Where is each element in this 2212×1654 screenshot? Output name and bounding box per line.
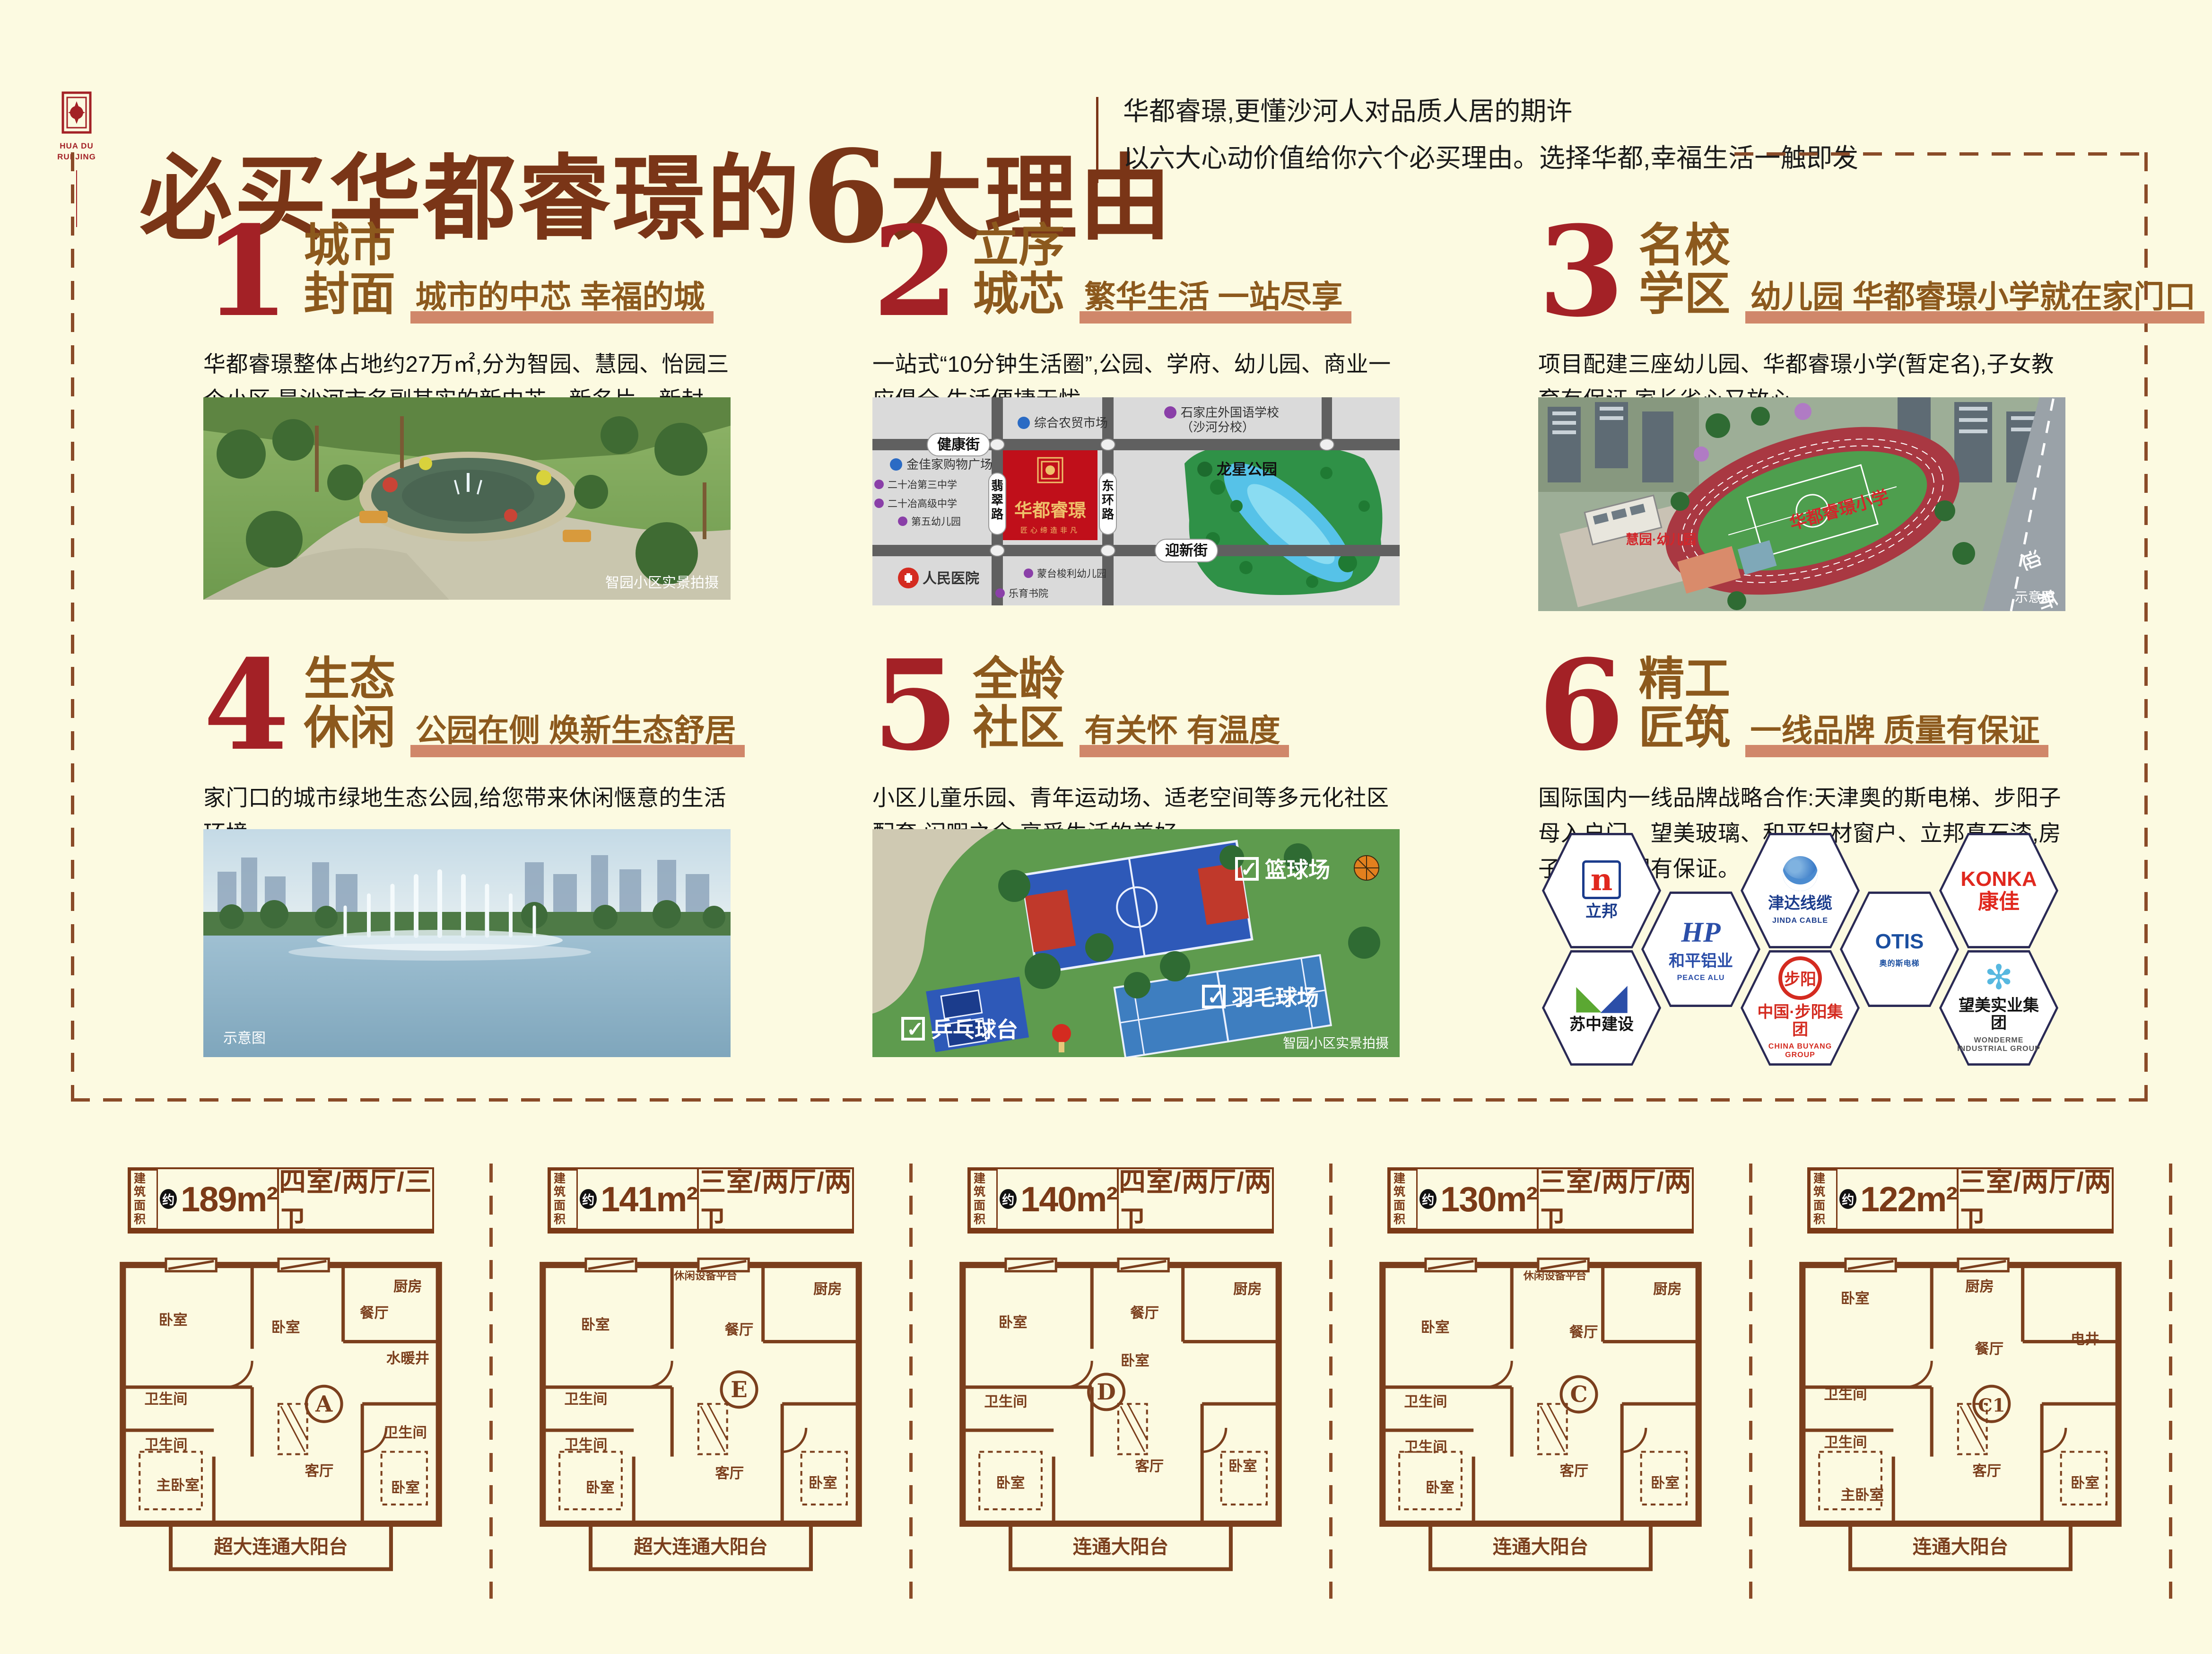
reason-1-subtitle: 城市的中芯 幸福的城 xyxy=(412,271,707,317)
brand-name: 苏中建设 xyxy=(1569,1016,1634,1033)
plan-approx-badge: 约 xyxy=(1420,1189,1437,1209)
svg-text:卧室: 卧室 xyxy=(586,1479,615,1496)
reason-6-number: 6 xyxy=(1538,658,1624,753)
floorplan-drawing: D 卧室餐厅厨房卫生间卧室客厅卧室卧室 连通大阳台 xyxy=(934,1246,1307,1619)
plan-area-prefix: 建筑面积 xyxy=(130,1169,158,1229)
svg-text:客厅: 客厅 xyxy=(305,1462,334,1479)
svg-text:客厅: 客厅 xyxy=(1560,1462,1589,1479)
wonderme-logo-icon: ✻ xyxy=(1985,963,2013,993)
svg-text:卫生间: 卫生间 xyxy=(384,1425,427,1441)
peace-alu-logo-icon: HP xyxy=(1681,916,1720,949)
reason-3-subtitle: 幼儿园 华都睿璟小学就在家门口 xyxy=(1747,271,2198,317)
plan-letter: C1 xyxy=(1978,1395,2005,1416)
hospital-icon xyxy=(898,568,919,588)
reason-4-title: 生态休闲 xyxy=(304,655,395,753)
svg-text:健康街: 健康街 xyxy=(937,437,980,453)
school-photo: 华都睿璟小学 慧园·幼儿园 迎 新 示意图 xyxy=(1538,397,2065,611)
svg-text:卧室: 卧室 xyxy=(1228,1458,1257,1474)
brand-logo: HUA DU RUI JING xyxy=(53,91,100,227)
floorplan-drawing: E 休闲设备平台卧室餐厅厨房卫生间卫生间卧室客厅卧室 超大连通大阳台 xyxy=(514,1246,888,1619)
reason-3-title: 名校学区 xyxy=(1638,221,1730,319)
reason-5-number: 5 xyxy=(872,658,958,753)
svg-text:卧室: 卧室 xyxy=(1426,1479,1454,1496)
brand-subname: WONDERME INDUSTRIAL GROUP xyxy=(1955,1036,2042,1053)
nippon-logo-icon: n xyxy=(1582,860,1621,899)
reason-2-number: 2 xyxy=(872,225,958,319)
brand-name: OTIS xyxy=(1875,930,1924,953)
plan-approx-badge: 约 xyxy=(1000,1189,1017,1209)
svg-text:卫生间: 卫生间 xyxy=(1824,1434,1867,1450)
svg-text:卫生间: 卫生间 xyxy=(144,1436,187,1453)
brand-name: 望美实业集团 xyxy=(1955,997,2042,1033)
plan-card-1: 建筑面积 约 189m² 四室/两厅/三卫 xyxy=(71,1154,491,1619)
svg-text:迎新街: 迎新街 xyxy=(1165,543,1208,559)
plan-label: 建筑面积 约 189m² 四室/两厅/三卫 xyxy=(128,1167,434,1234)
plan-card-3: 建筑面积 约 140m² 四室/两厅/两卫 xyxy=(911,1154,1331,1619)
svg-text:主卧室: 主卧室 xyxy=(1841,1487,1884,1503)
plan-area: 122m² xyxy=(1860,1179,1957,1219)
svg-text:水暖井: 水暖井 xyxy=(386,1350,429,1366)
brand-name: KONKA康佳 xyxy=(1955,868,2042,914)
plan-card-2: 建筑面积 约 141m² 三室/两厅/两卫 xyxy=(491,1154,911,1619)
reason-section-4: 4 生态休闲 公园在侧 焕新生态舒居 家门口的城市绿地生态公园,给您带来休闲惬意… xyxy=(203,655,731,851)
plan-area: 189m² xyxy=(181,1179,277,1219)
svg-text:餐厅: 餐厅 xyxy=(1130,1305,1159,1321)
reason-6-title: 精工匠筑 xyxy=(1638,655,1730,753)
reason-section-2: 2 立序城芯 繁华生活 一站尽享 一站式“10分钟生活圈”,公园、学府、幼儿园、… xyxy=(872,221,1400,417)
svg-text:卧室: 卧室 xyxy=(1651,1474,1680,1491)
poster-page: HUA DU RUI JING 必买华都睿璟的6大理由 华都睿璟,更懂沙河人对品… xyxy=(0,0,2212,1654)
plan-area-prefix: 建筑面积 xyxy=(1809,1169,1838,1229)
svg-text:✓: ✓ xyxy=(1240,858,1258,881)
svg-text:卧室: 卧室 xyxy=(159,1312,188,1328)
location-map: 华都睿璟 匠心缔造非凡 健康街 迎新街 翡翠路 东环路 xyxy=(872,397,1400,605)
svg-text:卧室: 卧室 xyxy=(1121,1352,1150,1369)
balcony-label: 连通大阳台 xyxy=(1073,1536,1169,1558)
brand-name: 和平铝业 xyxy=(1669,953,1733,970)
svg-text:卧室: 卧室 xyxy=(2071,1474,2099,1491)
svg-text:电井: 电井 xyxy=(2071,1331,2099,1348)
svg-text:卧室: 卧室 xyxy=(1421,1319,1450,1335)
plan-label: 建筑面积 约 141m² 三室/两厅/两卫 xyxy=(548,1167,854,1234)
plan-layout: 三室/两厅/两卫 xyxy=(699,1169,852,1229)
svg-text:二十冶第三中学: 二十冶第三中学 xyxy=(888,480,957,490)
road-ne xyxy=(1322,397,1332,441)
buyang-logo-icon: 步阳 xyxy=(1778,956,1822,1000)
brand-subname: JINDA CABLE xyxy=(1772,917,1828,925)
park-label: 龙星公园 xyxy=(1217,461,1277,478)
brand-grid: n 立邦 HP 和平铝业 PEACE ALU 津达线缆 JINDA CABLE … xyxy=(1538,831,2065,1070)
reason-6-subtitle: 一线品牌 质量有保证 xyxy=(1747,705,2042,751)
reason-section-1: 1 城市封面 城市的中芯 幸福的城 华都睿璟整体占地约27万㎡,分为智园、慧园、… xyxy=(203,221,731,453)
brand-name: 津达线缆 xyxy=(1768,895,1832,912)
sports-photo: ✓ 篮球场 ✓ 羽毛球场 ✓ 乒乓球台 智园小区实景拍摄 xyxy=(872,829,1400,1057)
plan-label: 建筑面积 约 122m² 三室/两厅/两卫 xyxy=(1807,1167,2114,1234)
plan-layout: 四室/两厅/两卫 xyxy=(1119,1169,1272,1229)
plan-card-4: 建筑面积 约 130m² 三室/两厅/两卫 xyxy=(1331,1154,1750,1619)
floorplan-drawing: C1 卧室厨房餐厅电井卫生间卫生间主卧室客厅卧室 连通大阳台 xyxy=(1774,1246,2147,1619)
svg-text:卧室: 卧室 xyxy=(809,1474,837,1491)
balcony-label: 连通大阳台 xyxy=(1493,1536,1589,1558)
svg-text:餐厅: 餐厅 xyxy=(725,1321,754,1338)
svg-text:餐厅: 餐厅 xyxy=(360,1305,389,1321)
plan-letter: C xyxy=(1570,1381,1587,1407)
seal-icon xyxy=(60,91,93,134)
svg-text:客厅: 客厅 xyxy=(715,1465,744,1481)
svg-text:厨房: 厨房 xyxy=(393,1278,422,1295)
plan-area-prefix: 建筑面积 xyxy=(549,1169,578,1229)
svg-text:东环路: 东环路 xyxy=(1102,479,1115,521)
plan-area: 141m² xyxy=(601,1179,697,1219)
reason-2-subtitle: 繁华生活 一站尽享 xyxy=(1081,271,1345,317)
balcony-label: 连通大阳台 xyxy=(1913,1536,2009,1558)
plan-area: 140m² xyxy=(1020,1179,1117,1219)
svg-text:卫生间: 卫生间 xyxy=(1824,1386,1867,1402)
reason-5-title: 全龄社区 xyxy=(973,655,1064,753)
floorplan-drawing: C 休闲设备平台卧室餐厅厨房卫生间卫生间卧室客厅卧室 连通大阳台 xyxy=(1354,1246,1727,1619)
svg-text:客厅: 客厅 xyxy=(1135,1458,1164,1474)
brand-subname: PEACE ALU xyxy=(1677,974,1725,982)
svg-text:厨房: 厨房 xyxy=(1965,1278,1994,1295)
svg-text:卧室: 卧室 xyxy=(999,1314,1028,1330)
reason-section-3: 3 名校学区 幼儿园 华都睿璟小学就在家门口 项目配建三座幼儿园、华都睿璟小学(… xyxy=(1538,221,2065,417)
svg-text:卧室: 卧室 xyxy=(1841,1290,1870,1307)
svg-text:综合农贸市场: 综合农贸市场 xyxy=(1034,416,1108,430)
road-bottom xyxy=(872,545,1400,556)
brand-hex-6: KONKA康佳 xyxy=(1939,833,2058,948)
logo-divider xyxy=(76,170,77,227)
park-photo: 示意图 xyxy=(203,829,731,1057)
svg-text:卧室: 卧室 xyxy=(391,1479,420,1496)
plan-letter: E xyxy=(731,1376,748,1402)
balcony-label: 超大连通大阳台 xyxy=(214,1536,348,1558)
logo-text: HUA DU RUI JING xyxy=(53,141,100,163)
svg-text:休闲设备平台: 休闲设备平台 xyxy=(673,1269,737,1282)
dashed-border-top xyxy=(1734,152,2147,156)
svg-text:餐厅: 餐厅 xyxy=(1975,1341,2003,1357)
dashed-border-left xyxy=(71,152,74,1101)
reason-section-6: 6 精工匠筑 一线品牌 质量有保证 国际国内一线品牌战略合作:天津奥的斯电梯、步… xyxy=(1538,655,2065,886)
kindergarten-label: 慧园·幼儿园 xyxy=(1626,532,1696,547)
plan-layout: 四室/两厅/三卫 xyxy=(279,1169,432,1229)
svg-text:卧室: 卧室 xyxy=(996,1474,1025,1491)
svg-text:篮球场: 篮球场 xyxy=(1265,858,1330,882)
plan-label: 建筑面积 约 140m² 四室/两厅/两卫 xyxy=(967,1167,1274,1234)
brand-hex-8: ✻ 望美实业集团 WONDERME INDUSTRIAL GROUP xyxy=(1939,950,2058,1066)
title-divider xyxy=(1096,97,1098,183)
brand-subname: CHINA BUYANG GROUP xyxy=(1757,1042,1844,1059)
plan-layout: 三室/两厅/两卫 xyxy=(1959,1169,2112,1229)
svg-text:人民医院: 人民医院 xyxy=(923,570,979,586)
svg-text:卧室: 卧室 xyxy=(581,1316,610,1333)
svg-text:乒乓球台: 乒乓球台 xyxy=(931,1017,1018,1042)
svg-text:休闲设备平台: 休闲设备平台 xyxy=(1523,1269,1587,1282)
svg-text:厨房: 厨房 xyxy=(813,1281,842,1297)
svg-text:主卧室: 主卧室 xyxy=(157,1477,200,1494)
balcony-label: 超大连通大阳台 xyxy=(634,1536,768,1558)
svg-text:蒙台梭利幼儿园: 蒙台梭利幼儿园 xyxy=(1037,569,1106,579)
svg-text:乐育书院: 乐育书院 xyxy=(1009,588,1048,599)
plan-card-5: 建筑面积 约 122m² 三室/两厅/两卫 xyxy=(1750,1154,2170,1619)
svg-text:厨房: 厨房 xyxy=(1653,1281,1682,1297)
photo-caption: 智园小区实景拍摄 xyxy=(605,575,719,591)
svg-text:翡翠路: 翡翠路 xyxy=(991,479,1004,521)
brand-hex-7: ◣◢ 苏中建设 xyxy=(1542,950,1661,1066)
svg-text:（沙河分校）: （沙河分校） xyxy=(1181,420,1254,434)
svg-text:金佳家购物广场: 金佳家购物广场 xyxy=(906,457,993,472)
page-subtitle: 华都睿璟,更懂沙河人对品质人居的期许 以六大心动价值给你六个必买理由。选择华都,… xyxy=(1123,98,1858,192)
svg-text:羽毛球场: 羽毛球场 xyxy=(1232,985,1319,1010)
plan-area-prefix: 建筑面积 xyxy=(969,1169,998,1229)
plan-area: 130m² xyxy=(1440,1179,1537,1219)
photo-caption: 示意图 xyxy=(2015,590,2055,604)
reason-4-subtitle: 公园在侧 焕新生态舒居 xyxy=(412,705,739,751)
plan-approx-badge: 约 xyxy=(580,1189,597,1209)
reason-3-number: 3 xyxy=(1538,225,1624,319)
photo-caption: 智园小区实景拍摄 xyxy=(1283,1036,1389,1050)
svg-text:卫生间: 卫生间 xyxy=(144,1391,187,1407)
floorplan-drawing: A 卧室卧室餐厅厨房水暖井卫生间卫生间主卧室客厅卫生间卧室 超大连通大阳台 xyxy=(94,1246,468,1619)
floorplans-row: 建筑面积 约 189m² 四室/两厅/三卫 xyxy=(71,1154,2170,1632)
plan-layout: 三室/两厅/两卫 xyxy=(1539,1169,1692,1229)
reason-1-number: 1 xyxy=(203,225,289,319)
jinda-logo-icon xyxy=(1783,856,1818,891)
dashed-border-bottom xyxy=(71,1098,2148,1102)
svg-text:卫生间: 卫生间 xyxy=(1404,1439,1447,1455)
brand-name: 立邦 xyxy=(1585,903,1618,920)
plan-approx-badge: 约 xyxy=(160,1189,177,1209)
project-block: 华都睿璟 匠心缔造非凡 xyxy=(1003,450,1097,540)
svg-text:厨房: 厨房 xyxy=(1233,1281,1262,1297)
svg-text:卫生间: 卫生间 xyxy=(1404,1393,1447,1409)
svg-text:✓: ✓ xyxy=(906,1018,924,1041)
reason-2-title: 立序城芯 xyxy=(973,221,1064,319)
svg-text:卫生间: 卫生间 xyxy=(564,1391,607,1407)
brand-subname: 奥的斯电梯 xyxy=(1879,957,1919,968)
plan-approx-badge: 约 xyxy=(1839,1189,1856,1209)
svg-text:石家庄外国语学校: 石家庄外国语学校 xyxy=(1181,405,1279,420)
plan-letter: D xyxy=(1097,1379,1115,1405)
suzhong-logo-icon: ◣◢ xyxy=(1576,982,1627,1012)
project-name: 华都睿璟 xyxy=(1014,501,1086,521)
svg-text:客厅: 客厅 xyxy=(1972,1462,2001,1479)
svg-text:二十冶高级中学: 二十冶高级中学 xyxy=(888,499,957,509)
brand-name: 中国·步阳集团 xyxy=(1757,1004,1844,1039)
plan-area-prefix: 建筑面积 xyxy=(1389,1169,1418,1229)
plan-label: 建筑面积 约 130m² 三室/两厅/两卫 xyxy=(1387,1167,1694,1234)
svg-text:餐厅: 餐厅 xyxy=(1569,1324,1598,1340)
svg-text:卫生间: 卫生间 xyxy=(984,1393,1027,1409)
community-photo: 智园小区实景拍摄 xyxy=(203,397,731,600)
reason-1-title: 城市封面 xyxy=(304,221,395,319)
svg-text:✓: ✓ xyxy=(1207,986,1225,1009)
plan-letter: A xyxy=(315,1391,333,1417)
photo-caption: 示意图 xyxy=(223,1031,266,1046)
reason-5-subtitle: 有关怀 有温度 xyxy=(1081,705,1283,751)
project-tagline: 匠心缔造非凡 xyxy=(1020,526,1080,534)
svg-text:第五幼儿园: 第五幼儿园 xyxy=(911,516,961,527)
reason-4-number: 4 xyxy=(203,658,289,753)
reason-section-5: 5 全龄社区 有关怀 有温度 小区儿童乐园、青年运动场、适老空间等多元化社区配套… xyxy=(872,655,1400,851)
svg-text:卫生间: 卫生间 xyxy=(564,1436,607,1453)
svg-text:卧室: 卧室 xyxy=(271,1319,300,1335)
